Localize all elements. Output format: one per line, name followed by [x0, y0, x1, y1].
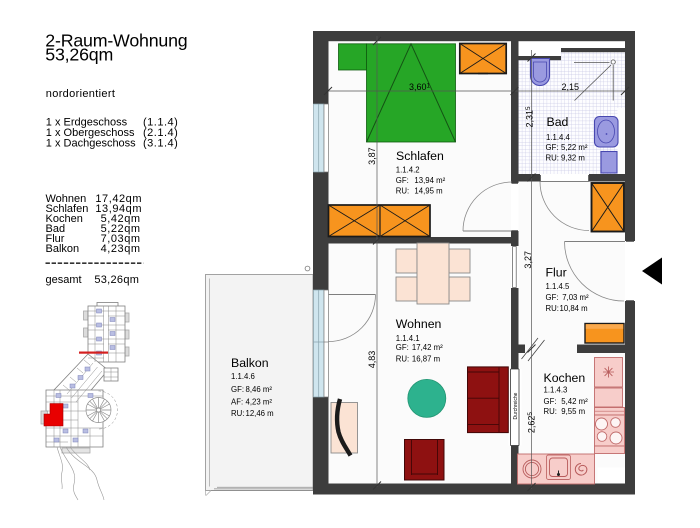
svg-text:4,23qm: 4,23qm — [101, 243, 141, 255]
svg-text:9,55 m: 9,55 m — [561, 407, 585, 416]
svg-text:nordorientiert: nordorientiert — [46, 88, 115, 100]
svg-text:Kochen: Kochen — [544, 371, 586, 385]
svg-text:gesamt: gesamt — [46, 274, 82, 286]
svg-text:Wohnen: Wohnen — [396, 317, 442, 331]
svg-text:GF:: GF: — [546, 293, 559, 302]
svg-text:GF:: GF: — [544, 397, 557, 406]
svg-text:5,42 m²: 5,42 m² — [561, 397, 588, 406]
svg-text:GF:: GF: — [396, 343, 409, 352]
svg-text:GF:: GF: — [396, 176, 409, 185]
svg-text:RU:: RU: — [546, 153, 559, 162]
svg-text:GF:: GF: — [231, 385, 244, 394]
svg-text:GF:: GF: — [546, 143, 559, 152]
svg-text:1.1.4.5: 1.1.4.5 — [546, 282, 571, 291]
svg-text:1.1.4.2: 1.1.4.2 — [396, 165, 420, 174]
svg-text:RU:: RU: — [396, 187, 409, 196]
svg-text:4,83: 4,83 — [367, 351, 377, 369]
svg-text:4,23 m²: 4,23 m² — [246, 397, 273, 406]
svg-text:3,27: 3,27 — [523, 251, 533, 269]
svg-text:Balkon: Balkon — [46, 243, 80, 255]
svg-text:RU:: RU: — [544, 407, 557, 416]
svg-text:2,15: 2,15 — [562, 82, 580, 92]
svg-text:RU:: RU: — [396, 354, 409, 363]
svg-text:Balkon: Balkon — [231, 356, 269, 370]
svg-text:Durchreiche: Durchreiche — [513, 392, 519, 419]
svg-text:10,84 m: 10,84 m — [560, 304, 588, 313]
svg-text:1 x Dachgeschoss: 1 x Dachgeschoss — [46, 137, 136, 149]
svg-text:13,94 m²: 13,94 m² — [414, 176, 445, 185]
svg-text:53,26qm: 53,26qm — [94, 274, 139, 286]
svg-text:5,22 m²: 5,22 m² — [561, 143, 588, 152]
svg-text:8,46 m²: 8,46 m² — [246, 385, 273, 394]
svg-text:RU:: RU: — [546, 304, 559, 313]
svg-text:Flur: Flur — [546, 266, 567, 280]
svg-text:1.1.4.3: 1.1.4.3 — [544, 385, 568, 394]
svg-text:1.1.4.4: 1.1.4.4 — [546, 133, 571, 142]
svg-text:16,87 m: 16,87 m — [412, 354, 440, 363]
svg-text:17,42 m²: 17,42 m² — [412, 343, 443, 352]
svg-text:(3.1.4): (3.1.4) — [143, 137, 178, 149]
svg-text:AF:: AF: — [231, 397, 243, 406]
svg-text:7,03 m²: 7,03 m² — [562, 293, 589, 302]
svg-text:Schlafen: Schlafen — [396, 149, 444, 163]
svg-text:RU:: RU: — [231, 409, 244, 418]
svg-text:53,26qm: 53,26qm — [45, 44, 113, 64]
svg-text:9,32 m: 9,32 m — [561, 153, 585, 162]
svg-text:1.1.4.6: 1.1.4.6 — [231, 372, 255, 381]
svg-text:Bad: Bad — [547, 115, 569, 129]
svg-text:12,46 m: 12,46 m — [246, 409, 274, 418]
svg-text:1.1.4.1: 1.1.4.1 — [396, 334, 420, 343]
svg-text:3,87: 3,87 — [367, 147, 377, 165]
svg-text:14,95 m: 14,95 m — [414, 187, 442, 196]
